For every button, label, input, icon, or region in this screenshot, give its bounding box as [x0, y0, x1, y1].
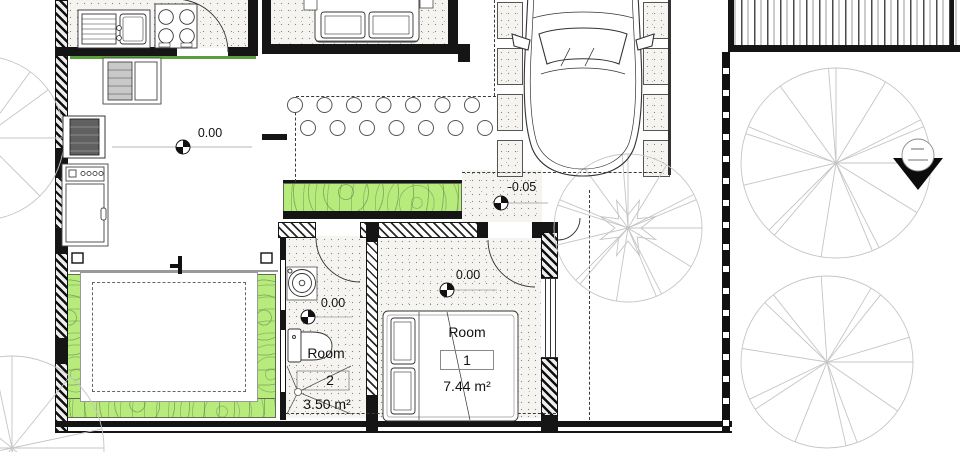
- wall-end-mark: [262, 134, 287, 140]
- room1-wall-east-pier: [541, 358, 558, 416]
- boundary-wall-bottom-line: [55, 431, 732, 433]
- bathroom-wall-west-solid: [280, 310, 286, 330]
- pergola-pots: [288, 98, 493, 136]
- deck-border-east: [950, 0, 954, 52]
- side-gate-arc: [558, 218, 580, 240]
- bedroom-top-floor: [271, 0, 448, 44]
- planter-courtyard-right: [257, 274, 276, 418]
- barbecue-note-line: 1200x684 h=450: [72, 164, 76, 246]
- bedroom-wall-step: [458, 52, 470, 62]
- bathroom-wall-north: [278, 222, 316, 238]
- level-marker: [176, 140, 190, 154]
- bottom-dashed-line: [286, 413, 556, 414]
- kitchen-wall-south: [55, 47, 177, 56]
- driveway-paver: [643, 2, 670, 39]
- boundary-wall-bottom: [55, 421, 732, 427]
- driveway-paver: [497, 94, 523, 131]
- room2-number: 2: [300, 372, 360, 388]
- deck: [728, 0, 960, 46]
- appliance: [63, 116, 105, 158]
- planter-strip-horizontal: [283, 183, 462, 212]
- level-label-kitchen: 0.00: [190, 126, 230, 140]
- deck-border-west: [728, 0, 734, 52]
- overhang-dashed-line: [589, 190, 590, 420]
- level-label-entry: -0.05: [500, 180, 544, 194]
- barbecue-note: Cun module BARBECUE 4 burners 2 drawers …: [64, 164, 76, 246]
- planting-line: [70, 56, 256, 59]
- driveway-paver: [643, 94, 670, 131]
- driveway-edge-line: [668, 0, 671, 175]
- planter-top-edge: [283, 180, 462, 183]
- pergola-posts: [72, 253, 272, 263]
- pergola-dashed-line: [295, 97, 296, 182]
- pergola-dashed-line: [494, 0, 495, 96]
- room2-area: 3.50 m²: [294, 396, 360, 412]
- patio-dashed-outline: [92, 282, 246, 392]
- level-label-bathroom: 0.00: [313, 296, 353, 310]
- deck-border-south: [728, 45, 960, 52]
- bedroom-wall-east: [448, 0, 458, 47]
- driveway-paver: [497, 2, 523, 39]
- planter-bottom-wall: [283, 211, 462, 219]
- entry-floor: [462, 170, 542, 222]
- room1-wall-east-pier: [541, 232, 558, 278]
- room1-name: Room: [437, 324, 497, 340]
- room1-wall-north: [378, 222, 478, 238]
- partition-wall-solid: [366, 222, 378, 242]
- bathroom-wall-west-solid: [280, 238, 286, 260]
- room2-name: Room: [296, 345, 356, 361]
- car: [512, 0, 654, 176]
- kitchen-floor: [60, 0, 250, 48]
- kitchen-wall-east: [248, 0, 258, 56]
- driveway-paver: [643, 48, 670, 85]
- room1-number-box: 1: [440, 350, 494, 370]
- cabinet: [103, 58, 161, 104]
- bathroom-wall-west-solid: [280, 392, 286, 420]
- room1-wall-east-top: [541, 222, 558, 232]
- room1-window: [541, 278, 558, 358]
- boundary-wall-right: [722, 52, 730, 432]
- floor-plan: 0.00 0.00 0.00 -0.05 Room 2 3.50 m² Room…: [0, 0, 960, 452]
- level-label-room1: 0.00: [448, 268, 488, 282]
- bedroom-wall-west: [262, 0, 271, 47]
- courtyard-top-line: [70, 270, 278, 272]
- bathroom-floor: [286, 236, 366, 418]
- section-marker: [893, 139, 943, 190]
- boundary-wall-left-solid: [55, 338, 68, 364]
- driveway-paver: [497, 48, 523, 85]
- door-jamb: [478, 222, 488, 238]
- pergola-dashed-line: [296, 96, 496, 97]
- bedroom-wall-south: [262, 44, 458, 54]
- room1-area: 7.44 m²: [437, 378, 497, 394]
- entry-dashed-line: [462, 172, 662, 173]
